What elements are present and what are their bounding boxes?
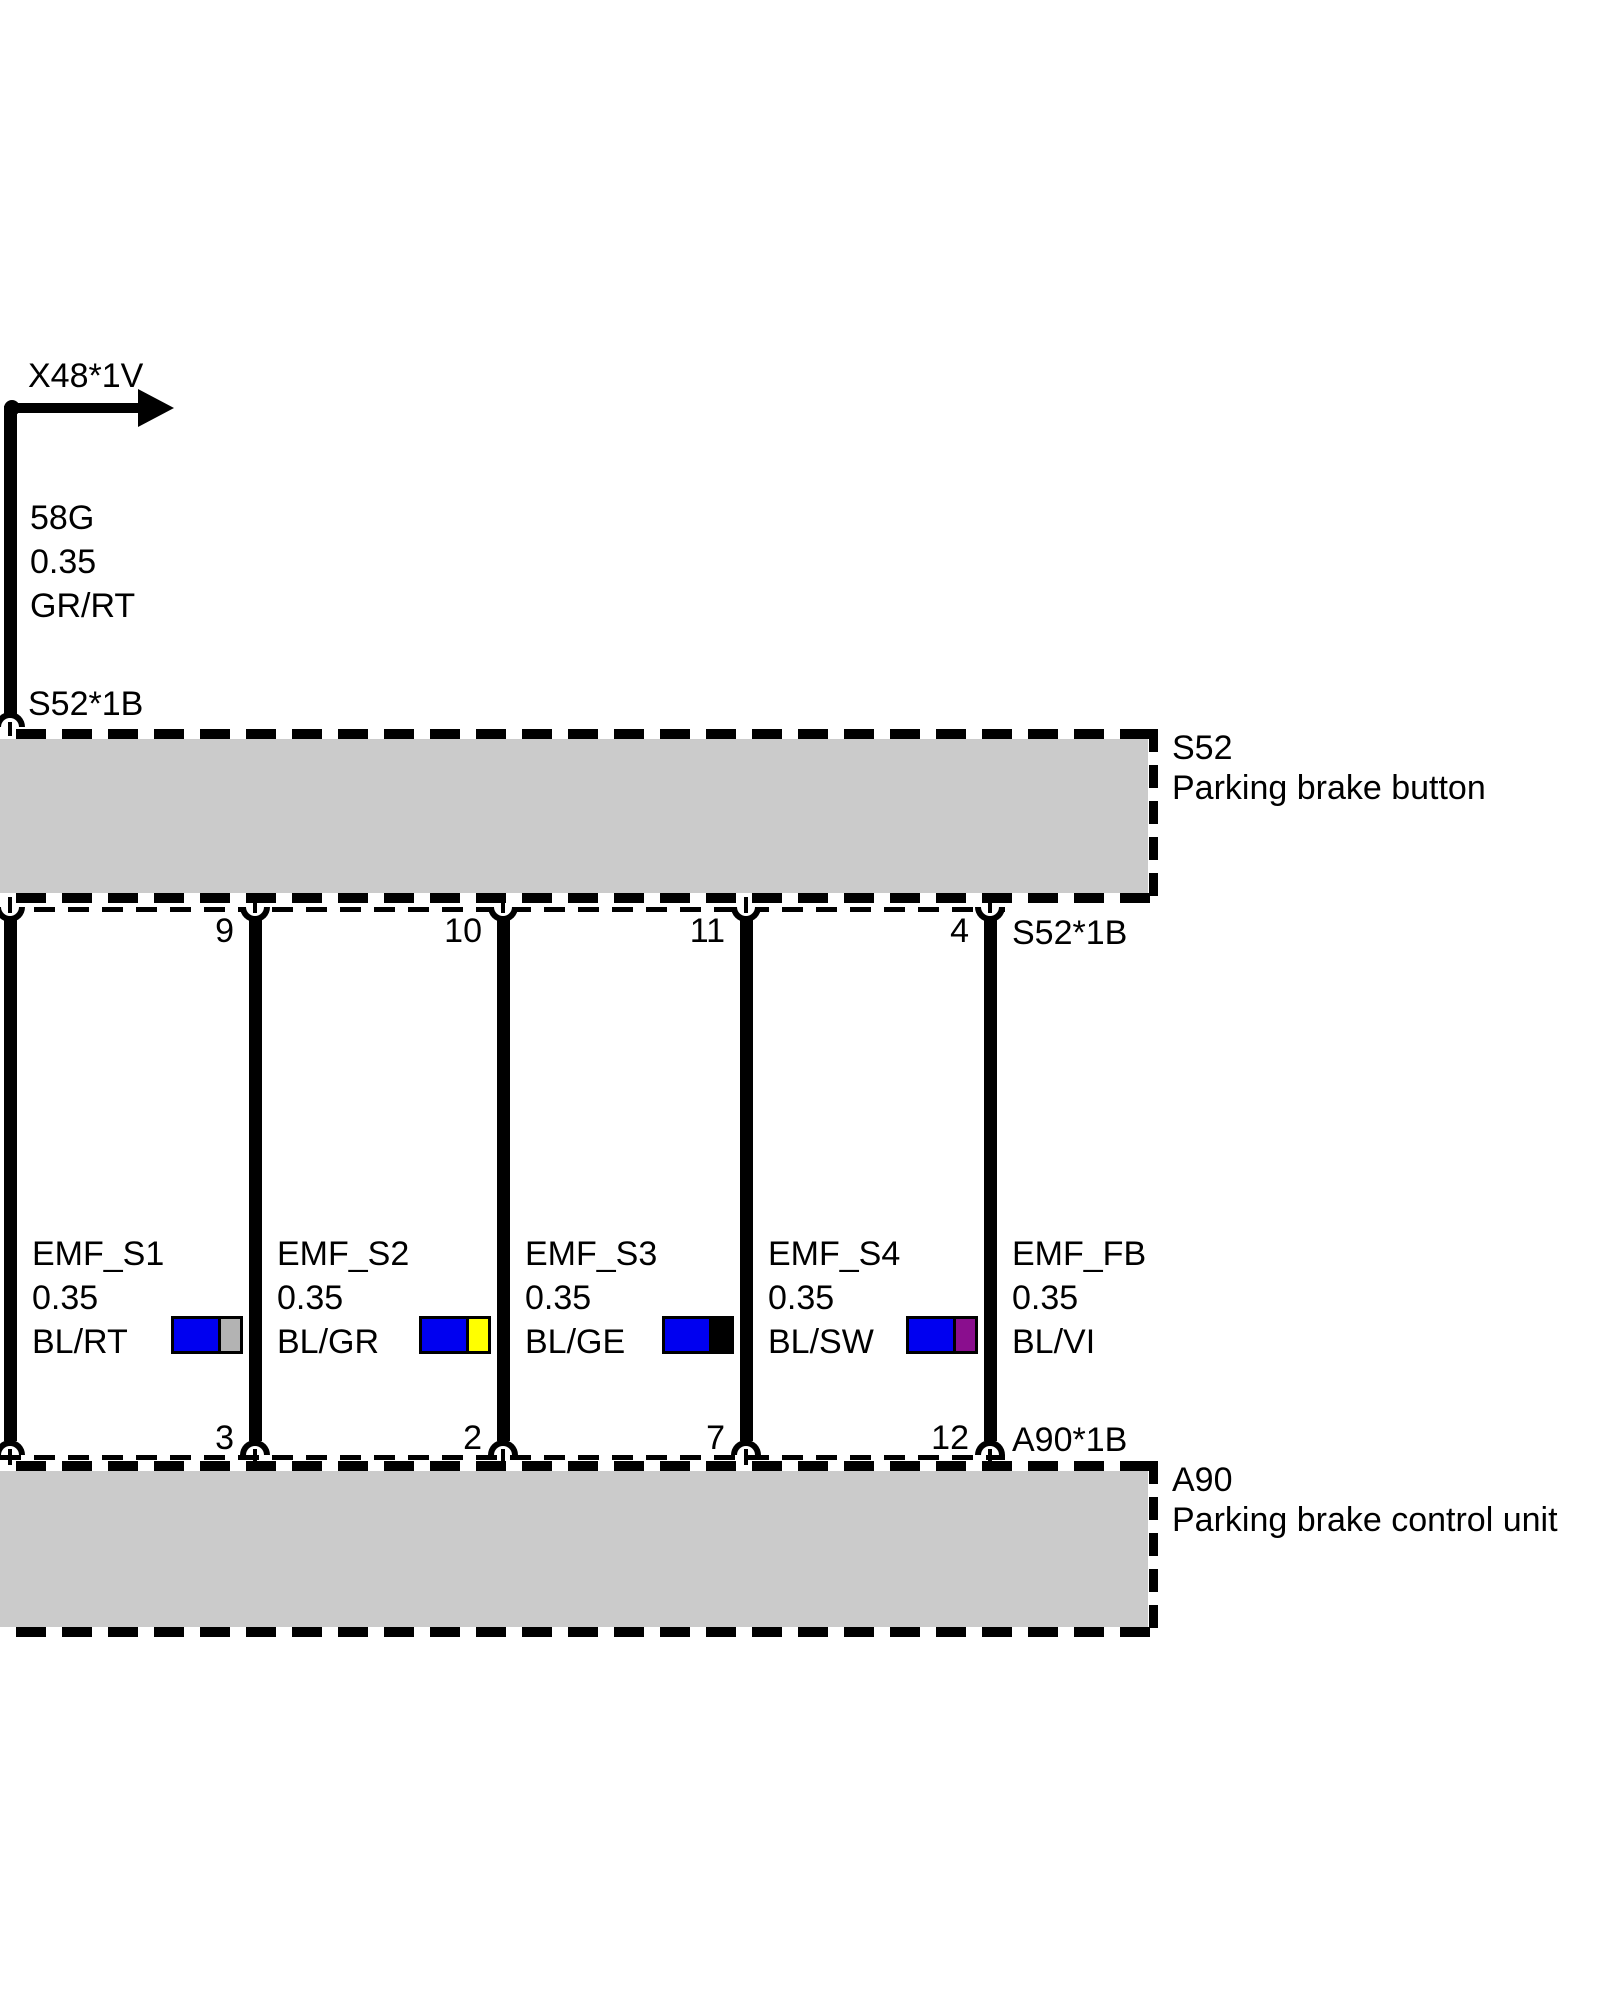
wire-color-swatch	[662, 1316, 734, 1354]
wire-color-swatch	[906, 1316, 978, 1354]
wiring-diagram-canvas: X48*1V 58G 0.35 GR/RT S52*1B EMF_S1 0.35…	[0, 0, 1600, 2000]
s52-pin-number: 9	[134, 912, 234, 950]
pin-stub	[253, 1449, 257, 1465]
feed-wire-color: GR/RT	[30, 584, 135, 628]
wire-emf-fb	[984, 920, 997, 1441]
a90-box-top-edge	[0, 1461, 1158, 1471]
a90-pin-number: 7	[625, 1419, 725, 1457]
pin-stub	[988, 1449, 992, 1465]
wire-label-emf-s3: EMF_S3 0.35 BL/GE	[525, 1232, 657, 1364]
s52-pin-number: 4	[869, 912, 969, 950]
a90-pin-number: 12	[869, 1419, 969, 1457]
wire-color: BL/GR	[277, 1320, 409, 1364]
swatch-main-color	[909, 1319, 953, 1351]
feed-wire-label: 58G 0.35 GR/RT	[30, 496, 135, 628]
a90-box-fill	[0, 1471, 1148, 1627]
s52-box-top-edge	[0, 729, 1158, 739]
s52-box-fill	[0, 739, 1148, 893]
a90-box-bottom-edge	[0, 1627, 1158, 1637]
wire-feed-58g	[4, 406, 17, 714]
s52-top-connector-label: S52*1B	[28, 684, 143, 724]
branch-arrow-shaft	[12, 403, 140, 413]
s52-pin-number: 10	[382, 912, 482, 950]
wire-signal: EMF_S1	[32, 1232, 164, 1276]
s52-connector-label: S52*1B	[1012, 914, 1127, 952]
socket-connector	[0, 712, 25, 727]
swatch-main-color	[422, 1319, 466, 1351]
swatch-second-color	[221, 1319, 240, 1351]
swatch-second-color	[712, 1319, 731, 1351]
wire-cross-section: 0.35	[768, 1276, 900, 1320]
wire-cross-section: 0.35	[1012, 1276, 1146, 1320]
swatch-main-color	[174, 1319, 218, 1351]
wire-cross-section: 0.35	[525, 1276, 657, 1320]
s52-box-right-edge	[1149, 729, 1158, 903]
pin-stub	[253, 897, 257, 913]
s52-box-code: S52	[1172, 728, 1233, 768]
pin-stub	[501, 1449, 505, 1465]
wire-signal: EMF_S2	[277, 1232, 409, 1276]
pin-stub	[988, 897, 992, 913]
wire-emf-s2	[249, 920, 262, 1441]
wire-emf-s3	[497, 920, 510, 1441]
wire-color-swatch	[171, 1316, 243, 1354]
wire-signal: EMF_S3	[525, 1232, 657, 1276]
swatch-second-color	[469, 1319, 488, 1351]
wire-emf-s1	[4, 920, 17, 1441]
wire-label-emf-s2: EMF_S2 0.35 BL/GR	[277, 1232, 409, 1364]
pin-stub	[501, 897, 505, 913]
pin-stub	[8, 722, 12, 736]
wire-color-swatch	[419, 1316, 491, 1354]
wire-cross-section: 0.35	[32, 1276, 164, 1320]
wire-color: BL/GE	[525, 1320, 657, 1364]
branch-arrow-head-icon	[138, 389, 174, 427]
feed-wire-circuit: 58G	[30, 496, 135, 540]
pin-stub	[744, 897, 748, 913]
pin-stub	[744, 1449, 748, 1465]
wire-color: BL/SW	[768, 1320, 900, 1364]
wire-signal: EMF_FB	[1012, 1232, 1146, 1276]
wire-cross-section: 0.35	[277, 1276, 409, 1320]
feed-wire-cross-section: 0.35	[30, 540, 135, 584]
s52-box-name: Parking brake button	[1172, 768, 1486, 808]
wire-label-emf-s1: EMF_S1 0.35 BL/RT	[32, 1232, 164, 1364]
a90-box-name: Parking brake control unit	[1172, 1500, 1558, 1540]
wire-color: BL/RT	[32, 1320, 164, 1364]
socket-connector	[0, 1440, 25, 1455]
a90-box-code: A90	[1172, 1460, 1233, 1500]
wire-emf-s4	[740, 920, 753, 1441]
a90-box-right-edge	[1149, 1461, 1158, 1637]
swatch-main-color	[665, 1319, 709, 1351]
wire-label-emf-s4: EMF_S4 0.35 BL/SW	[768, 1232, 900, 1364]
s52-box-bottom-edge	[0, 893, 1158, 903]
pin-stub	[8, 897, 12, 913]
pin-stub	[8, 1449, 12, 1465]
branch-connector-label: X48*1V	[28, 356, 143, 396]
s52-pin-number: 11	[625, 912, 725, 950]
swatch-second-color	[956, 1319, 975, 1351]
wire-color: BL/VI	[1012, 1320, 1146, 1364]
a90-pin-number: 2	[382, 1419, 482, 1457]
a90-pin-number: 3	[134, 1419, 234, 1457]
a90-connector-label: A90*1B	[1012, 1421, 1127, 1459]
wire-signal: EMF_S4	[768, 1232, 900, 1276]
wire-label-emf-fb: EMF_FB 0.35 BL/VI	[1012, 1232, 1146, 1364]
